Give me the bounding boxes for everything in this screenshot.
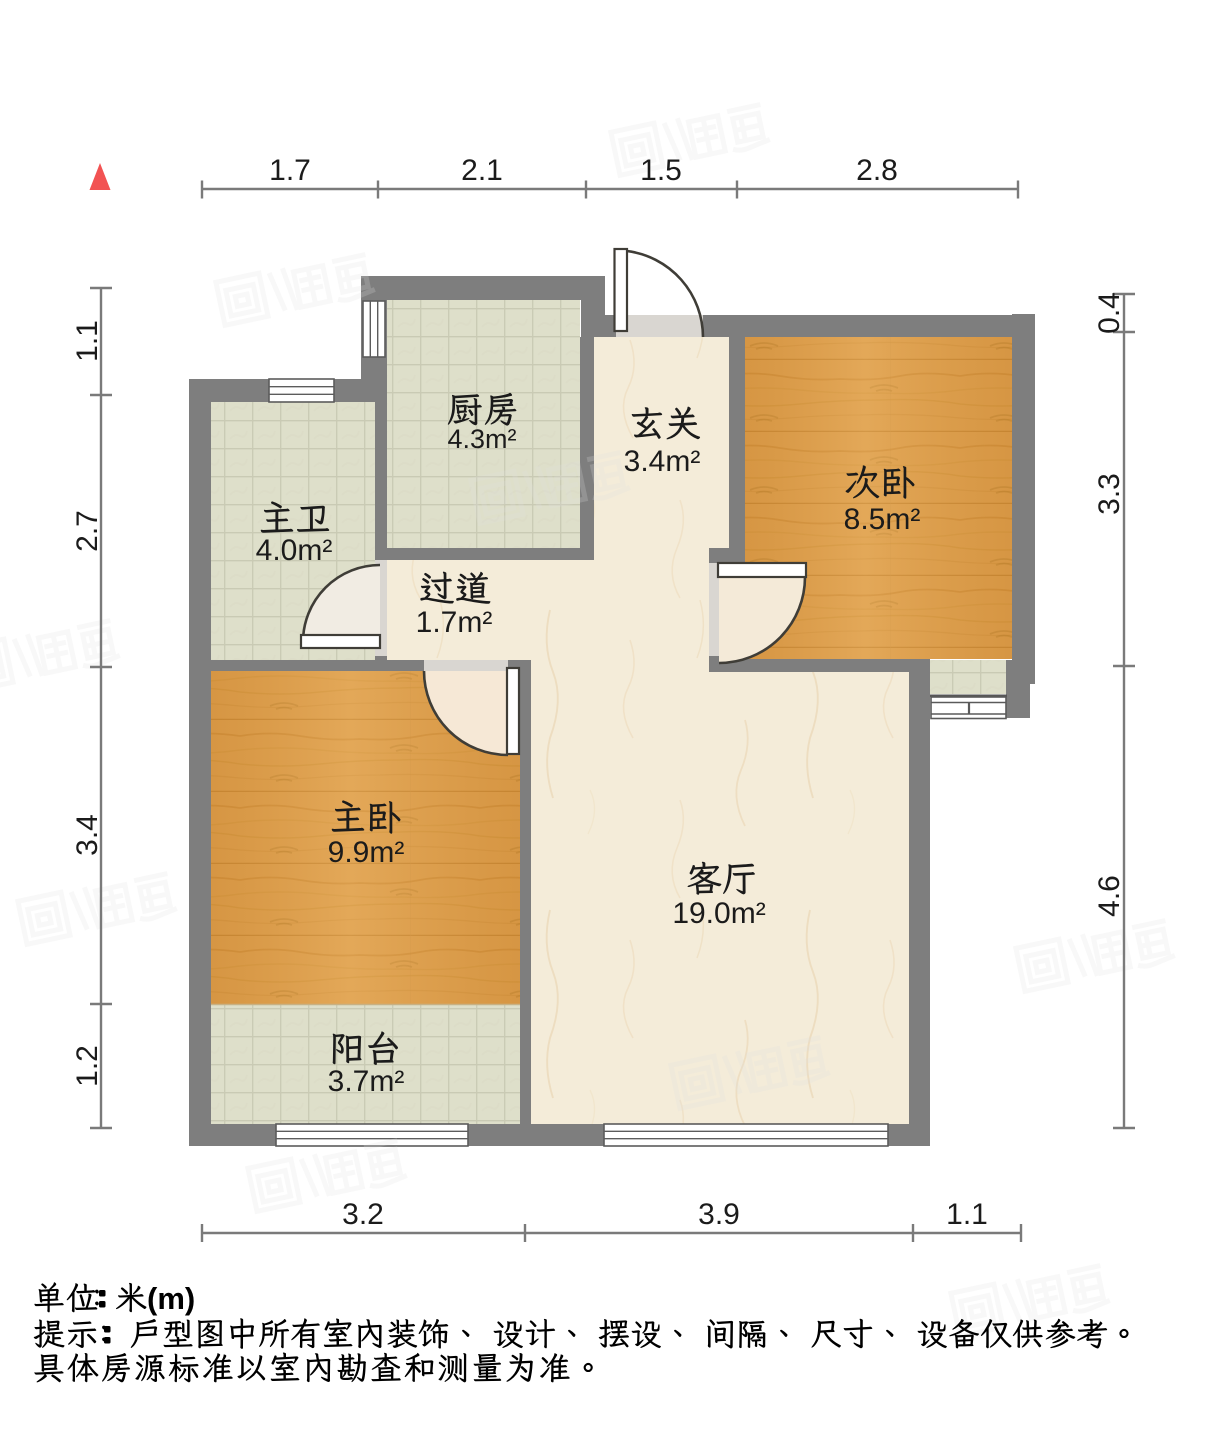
- svg-text:8.5m²: 8.5m²: [844, 503, 921, 536]
- svg-text:3.4m²: 3.4m²: [624, 445, 701, 478]
- svg-text:2.1: 2.1: [461, 154, 503, 187]
- svg-text:2.8: 2.8: [856, 154, 898, 187]
- svg-text:1.1: 1.1: [946, 1198, 988, 1231]
- svg-text:3.7m²: 3.7m²: [328, 1065, 405, 1098]
- svg-text:3.4: 3.4: [71, 814, 104, 856]
- svg-text:4.0m²: 4.0m²: [256, 534, 333, 567]
- svg-text:19.0m²: 19.0m²: [672, 897, 765, 930]
- svg-text:9.9m²: 9.9m²: [328, 836, 405, 869]
- svg-text:1.1: 1.1: [71, 320, 104, 362]
- svg-text:2.7: 2.7: [71, 510, 104, 552]
- svg-text:1.7m²: 1.7m²: [416, 606, 493, 639]
- svg-text:1.7: 1.7: [269, 154, 311, 187]
- svg-text:4.6: 4.6: [1093, 875, 1126, 917]
- svg-text:3.3: 3.3: [1093, 473, 1126, 515]
- svg-text:4.3m²: 4.3m²: [447, 424, 516, 454]
- svg-text:1.5: 1.5: [640, 154, 682, 187]
- svg-text:3.2: 3.2: [342, 1198, 384, 1231]
- svg-text:0.4: 0.4: [1093, 292, 1126, 334]
- svg-text:1.2: 1.2: [71, 1045, 104, 1087]
- svg-text:3.9: 3.9: [698, 1198, 740, 1231]
- svg-text:(m): (m): [147, 1281, 195, 1316]
